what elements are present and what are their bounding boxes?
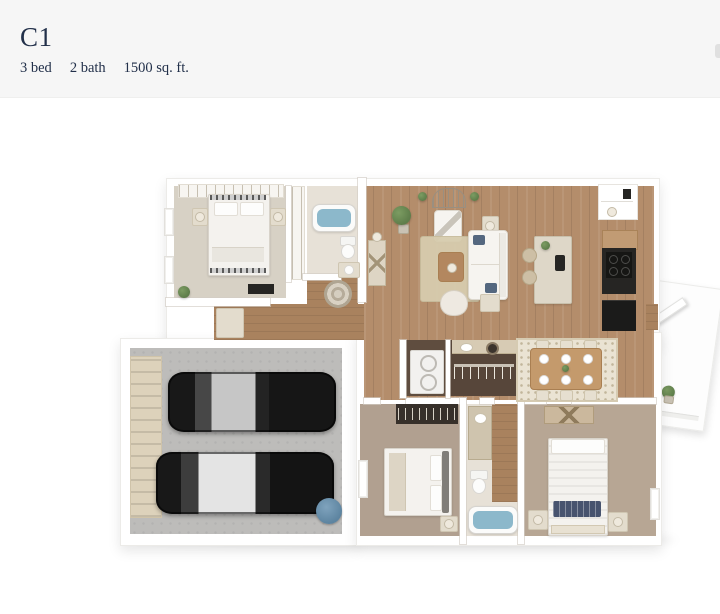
wall-bed2-bath2 [460,398,466,544]
bedroom1-closet-strip [291,186,305,280]
bedroom2-closet-hangers [398,408,456,420]
bathroom1-sink [344,265,354,275]
carousel-arrow-fragment [715,44,720,58]
tub-water [473,511,513,529]
wall-laundry-left [400,340,406,398]
spec-beds: 3 bed [20,60,52,77]
bathroom1-toilet [340,236,356,258]
island-plant-icon [541,241,550,250]
kitchen-stool [522,248,537,263]
living-coffee-table [438,252,464,282]
spec-baths: 2 bath [70,60,106,77]
bed2-pillow [430,485,442,511]
bed1-footboard [210,268,266,273]
water-heater [316,498,342,524]
place-setting [561,354,571,364]
bedroom1-lamp-icon [195,212,205,222]
sofa-back [499,233,506,297]
wall-bed1-closet [286,186,291,282]
wall-laundry-closet [446,340,450,398]
bed3-bench [551,525,605,534]
wall-plant-icon [470,192,479,201]
pantry-item [607,207,617,217]
car [168,372,336,432]
bedroom2-bed [384,448,452,516]
dining-centerpiece [562,365,569,372]
wall-corridor-3 [480,398,494,404]
bedroom3-dresser [544,406,594,424]
bedroom1-plant-icon [178,286,190,298]
bedroom1-media-console [248,284,274,294]
bathroom2-tub [468,506,518,534]
place-setting [583,354,593,364]
bed3-blanket [553,501,601,517]
bedroom1-bed [208,194,270,276]
hallway-bench [216,308,244,338]
coffee-table-decor [447,263,457,273]
washer-dryer [410,350,444,394]
bed1-pillow [240,202,264,216]
place-setting [539,354,549,364]
closet-vanity-counter [452,340,516,354]
sofa-pillow-blue [485,283,497,293]
closet-sink [460,343,473,352]
bedroom3-lamp-icon [533,515,543,525]
bed3-headboard [551,439,605,454]
bedroom1-lamp-icon [273,212,283,222]
wall-bath1-living [358,178,366,302]
living-swivel-chair [440,290,468,316]
dining-chair [536,390,549,401]
bedroom3-lamp-icon [613,517,623,527]
coffee-maker [623,189,631,199]
kitchen-counter-dark [602,248,636,294]
place-setting [539,375,549,385]
floorplan-image [120,172,704,552]
round-mirror [486,342,499,355]
car [156,452,334,514]
wall-bath2-bed3 [518,398,524,544]
bathroom2-vanity [468,406,492,460]
bathroom1-tub [312,204,356,232]
plan-header: C1 3 bed 2 bath 1500 sq. ft. [0,0,720,98]
kitchen-stool [522,270,537,285]
bedroom2-closet [396,404,458,424]
cooktop [606,252,632,278]
closet-hangers [454,367,514,379]
bathroom2-sink [474,413,487,424]
wall-bed1-bottom [166,298,270,306]
entry-x-console [368,240,386,286]
plan-specs: 3 bed 2 bath 1500 sq. ft. [20,60,189,77]
bed2-headboard [442,451,449,513]
place-setting [583,375,593,385]
bed1-headboard [210,195,266,200]
bathroom2-wood-strip [492,404,518,502]
living-plant-pot [398,224,409,234]
island-sink [555,255,565,271]
sofa-pillow-blue [473,235,485,245]
bedroom1-window [164,256,174,284]
pantry-shelf-line [601,201,633,202]
kitchen-counter-wood [602,230,638,250]
bed2-throw [389,453,406,511]
sofa-cushion-line [471,264,499,265]
dining-table [530,348,602,390]
bedroom2-niche [358,460,368,498]
dining-chair [560,390,573,401]
living-plant-icon [392,206,411,225]
kitchen-fridge [602,300,636,331]
living-sofa [468,230,508,300]
dryer-door [420,374,437,391]
place-setting [561,375,571,385]
bed2-pillow [430,455,442,481]
bedroom3-window [650,488,660,520]
burner [621,267,630,276]
spec-area: 1500 sq. ft. [124,60,189,77]
kitchen-pantry-nook [598,184,638,220]
porch-plant-pot [663,395,674,404]
wall-bath1-bottom [303,274,341,280]
toilet-bowl [472,478,486,494]
bedroom3-bed [548,438,608,536]
wall-grille-decor [432,188,466,208]
living-ottoman [480,294,500,312]
bedroom1-window [164,208,174,236]
burner [609,255,618,264]
burner [621,255,630,264]
entry-console-lamp-icon [372,232,382,242]
hallway-medallion-rug [324,280,352,308]
bed1-pillow [214,202,238,216]
washer-door [420,355,437,372]
tub-water [317,209,351,227]
wall-corridor-1 [364,398,380,404]
toilet-bowl [341,244,355,259]
plan-title: C1 [20,22,53,53]
kitchen-island [534,236,572,304]
front-door-threshold [646,304,658,330]
burner [609,267,618,276]
dining-chair [584,390,597,401]
bathroom2-toilet [470,470,488,494]
bed1-blanket-fold [212,247,264,262]
bedroom2-lamp-icon [444,519,454,529]
wall-plant-icon [418,192,427,201]
